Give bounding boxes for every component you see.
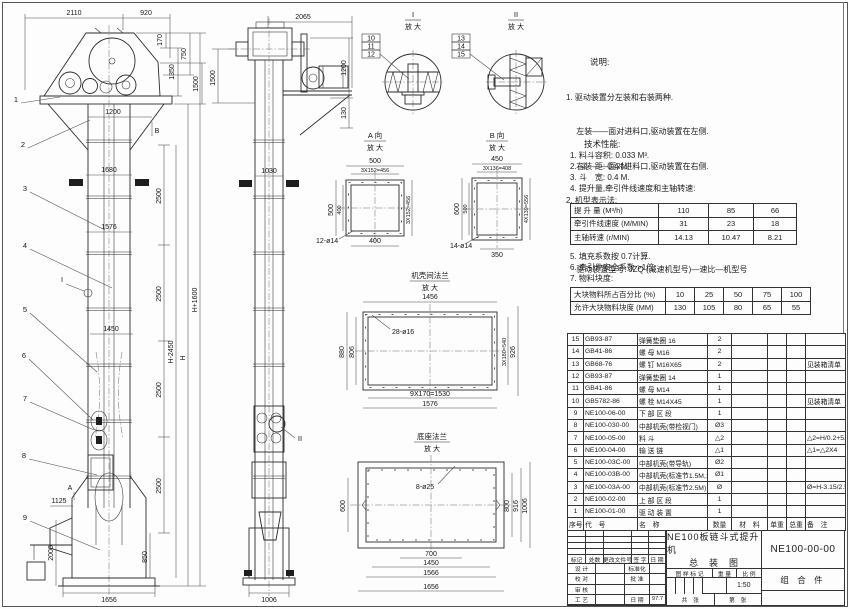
table-cell: 11 bbox=[568, 383, 584, 395]
table-row: 4NE100-03B-00中部机壳(标准节1.5M,1M)Ø1 bbox=[568, 469, 846, 481]
table-cell bbox=[806, 456, 846, 468]
table-cell: NE100-03C-00 bbox=[584, 456, 638, 468]
table-cell bbox=[787, 395, 806, 407]
side-view-geometry bbox=[228, 18, 352, 596]
table-row: 8NE100-030-00中部机壳(带检视门)Ø3 bbox=[568, 420, 846, 432]
table-cell: 12 bbox=[568, 370, 584, 382]
table-cell bbox=[732, 395, 768, 407]
table-cell bbox=[787, 506, 806, 518]
part-label: 2 bbox=[21, 140, 25, 149]
table-row: 允许大块物料块度 (MM)130105806555 bbox=[571, 301, 811, 315]
table-cell: 55 bbox=[782, 301, 811, 315]
table-cell: 130 bbox=[666, 301, 695, 315]
dim-label: 1656 bbox=[423, 584, 439, 591]
dim-label: 1500 bbox=[193, 76, 200, 92]
parts-list-header-row: 序号代 号名 称数量材 料单重总重备 注 bbox=[568, 518, 846, 530]
approve-label: 批 准 bbox=[625, 574, 650, 584]
table-cell: 序号 bbox=[568, 518, 584, 530]
table-cell: Ø2 bbox=[708, 456, 732, 468]
table-cell: NE100-03A-00 bbox=[584, 481, 638, 493]
table-row: 12GB93-87弹簧垫圈 141 bbox=[568, 370, 846, 382]
table-cell: 10 bbox=[568, 395, 584, 407]
table-cell: GB93-87 bbox=[584, 370, 638, 382]
table-cell: 2 bbox=[708, 358, 732, 370]
table-cell: 18 bbox=[754, 217, 797, 231]
dim-label: H bbox=[180, 355, 187, 360]
table-cell: Ø bbox=[708, 481, 732, 493]
process-label: 工 艺 bbox=[568, 595, 596, 605]
title-block: 标记 处数 更改文件号 签 字 日 期 设 计标准化 校 对批 准 审 核 工 … bbox=[567, 530, 845, 606]
table-row: 14GB41-86螺 母 M162 bbox=[568, 346, 846, 358]
table-cell: 螺 母 M14 bbox=[638, 383, 708, 395]
table-cell bbox=[732, 456, 768, 468]
table-cell bbox=[768, 395, 787, 407]
table-cell bbox=[732, 346, 768, 358]
table-cell: 代 号 bbox=[584, 518, 638, 530]
table-cell: 85 bbox=[709, 204, 754, 218]
table-cell bbox=[732, 334, 768, 346]
table-cell: 提 升 量 (M³/h) bbox=[571, 204, 659, 218]
table-cell: 110 bbox=[659, 204, 709, 218]
table-cell: NE100-06-00 bbox=[584, 407, 638, 419]
dim-label: 926 bbox=[510, 346, 517, 358]
hole-callout: 8-ø25 bbox=[416, 484, 434, 491]
dim-label: 1350 bbox=[169, 64, 176, 80]
part-label: 7 bbox=[23, 394, 27, 403]
number-area: NE100-00-00 组 合 件 bbox=[761, 531, 844, 605]
part-label: 3 bbox=[23, 184, 27, 193]
table-cell bbox=[787, 346, 806, 358]
table-row: 2NE100-02-00上 部 区 段1 bbox=[568, 493, 846, 505]
table-cell: 10 bbox=[666, 288, 695, 302]
table-cell bbox=[732, 444, 768, 456]
table-cell bbox=[732, 469, 768, 481]
part-label: 1 bbox=[14, 95, 18, 104]
table-cell bbox=[787, 407, 806, 419]
table-cell bbox=[787, 370, 806, 382]
standardize-label: 标准化 bbox=[625, 564, 650, 574]
table-cell bbox=[732, 407, 768, 419]
part-label: 6 bbox=[22, 351, 26, 360]
dim-label: 2500 bbox=[156, 382, 163, 398]
casing-flange-view: 机壳间法兰 放 大 1456 28-ø16 880 806 3X180=540 … bbox=[339, 270, 518, 408]
dim-label: 2500 bbox=[156, 188, 163, 204]
hole-callout: 28-ø16 bbox=[392, 329, 414, 336]
section-mark-a: A bbox=[68, 485, 73, 492]
dim-label: 400 bbox=[369, 238, 381, 245]
table-cell: 8.21 bbox=[754, 231, 797, 245]
table-cell bbox=[732, 370, 768, 382]
proofread-label: 校 对 bbox=[568, 574, 596, 584]
dim-label: 600 bbox=[454, 203, 461, 215]
dim-label: 750 bbox=[181, 48, 188, 60]
dim-label: 3X180=540 bbox=[502, 338, 508, 366]
lump-size-table: 大块物料所占百分比 (%)10255075100允许大块物料块度 (MM)130… bbox=[570, 287, 811, 315]
detail-2: II 放 大 13 14 15 bbox=[452, 10, 548, 114]
table-cell bbox=[806, 334, 846, 346]
weight-label: 重 量 bbox=[713, 569, 737, 578]
part-label: 4 bbox=[23, 241, 27, 250]
table-cell: NE100-030-00 bbox=[584, 420, 638, 432]
table-cell: 1 bbox=[708, 506, 732, 518]
date-label: 日 期 bbox=[625, 595, 650, 605]
table-cell: NE100-03B-00 bbox=[584, 469, 638, 481]
table-cell bbox=[787, 444, 806, 456]
table-cell: 2 bbox=[708, 346, 732, 358]
table-cell bbox=[768, 444, 787, 456]
dim-label: 3X152=456 bbox=[361, 168, 389, 174]
dim-label: 500 bbox=[328, 204, 335, 216]
part-label: 15 bbox=[457, 52, 465, 59]
spec-line: 5. 填充系数按 0.7计算. bbox=[570, 251, 848, 262]
part-label: 10 bbox=[367, 36, 375, 43]
view-b-subtitle: 放 大 bbox=[489, 143, 505, 152]
table-cell bbox=[787, 358, 806, 370]
table-cell: △2 bbox=[708, 432, 732, 444]
table-cell: 主轴转速 (r/MIN) bbox=[571, 231, 659, 245]
table-cell: 材 料 bbox=[732, 518, 768, 530]
part-label: 13 bbox=[457, 36, 465, 43]
table-cell: 1 bbox=[708, 407, 732, 419]
part-label: 5 bbox=[23, 305, 27, 314]
table-row: 9NE100-06-00下 部 区 段1 bbox=[568, 407, 846, 419]
table-cell: 66 bbox=[754, 204, 797, 218]
table-cell: 15 bbox=[568, 334, 584, 346]
table-cell: 名 称 bbox=[638, 518, 708, 530]
table-row: 15GB93-87弹簧垫圈 162 bbox=[568, 334, 846, 346]
dim-label: 1656 bbox=[101, 597, 117, 604]
table-cell: △1=△2X4 bbox=[806, 444, 846, 456]
table-row: 6NE100-04-00输 送 链△1△1=△2X4 bbox=[568, 444, 846, 456]
part-label: 12 bbox=[367, 52, 375, 59]
table-cell bbox=[806, 346, 846, 358]
dim-label: 1200 bbox=[105, 109, 121, 116]
note-line: 左装——面对进料口,驱动装置在左侧. bbox=[566, 126, 848, 138]
dim-label: 700 bbox=[425, 551, 437, 558]
blank-cell bbox=[762, 591, 844, 605]
dim-label: 850 bbox=[142, 551, 149, 563]
table-cell: 23 bbox=[709, 217, 754, 231]
table-cell: 25 bbox=[695, 288, 724, 302]
table-cell bbox=[787, 456, 806, 468]
dim-label: 450 bbox=[491, 156, 503, 163]
dim-label: 1200 bbox=[341, 60, 348, 76]
table-cell bbox=[806, 383, 846, 395]
detail-mark-2: II bbox=[298, 434, 302, 443]
view-a: A 向 放 大 500 3X152=456 500 400 3X152=456 … bbox=[316, 130, 412, 246]
detail-mark-1: I bbox=[61, 275, 63, 284]
dim-label: 1006 bbox=[261, 597, 277, 604]
table-cell: 料 斗 bbox=[638, 432, 708, 444]
table-cell: GB93-87 bbox=[584, 334, 638, 346]
part-label: 14 bbox=[457, 44, 465, 51]
table-cell: 备 注 bbox=[806, 518, 846, 530]
total-sheets-label: 共 张 bbox=[667, 594, 715, 605]
title-area: NE100板链斗式提升机 总 装 图 图 样 标 记 重 量 比 例 1:50 … bbox=[666, 531, 761, 605]
elevator-drawing: 2110 920 170 1350 750 1500 1200 B 1680 1… bbox=[0, 0, 565, 609]
table-cell: 下 部 区 段 bbox=[638, 407, 708, 419]
table-cell: Ø=H-3.15/2.5 bbox=[806, 481, 846, 493]
dim-label: 1030 bbox=[261, 168, 277, 175]
table-cell: 螺 栓 M14X45 bbox=[638, 395, 708, 407]
dim-label: 2110 bbox=[66, 10, 81, 17]
table-cell: 弹簧垫圈 16 bbox=[638, 334, 708, 346]
scale-value: 1:50 bbox=[727, 578, 762, 594]
table-cell bbox=[768, 370, 787, 382]
dim-label: 1566 bbox=[423, 570, 439, 577]
dim-label: 400 bbox=[337, 205, 343, 214]
hole-callout: 14-ø14 bbox=[450, 243, 472, 250]
date-value: 97.7 bbox=[650, 595, 666, 605]
table-row: 5NE100-03C-00中部机壳(带导轨)Ø2 bbox=[568, 456, 846, 468]
table-cell: 1 bbox=[708, 493, 732, 505]
table-cell bbox=[787, 481, 806, 493]
table-cell bbox=[806, 420, 846, 432]
spec-line: 6. 牵引件安全系数 >1倍. bbox=[570, 262, 848, 273]
scale-label: 比 例 bbox=[737, 569, 761, 578]
table-cell bbox=[768, 456, 787, 468]
table-cell: 1 bbox=[708, 383, 732, 395]
spec-line: 7. 物料块度: bbox=[570, 273, 848, 284]
stamp-label: 图 样 标 记 bbox=[667, 569, 713, 578]
table-cell: 总重 bbox=[787, 518, 806, 530]
rev-date-label: 日 期 bbox=[649, 555, 666, 564]
dim-label: 1125 bbox=[51, 498, 66, 505]
table-cell: △1 bbox=[708, 444, 732, 456]
dim-label: 1006 bbox=[522, 498, 529, 514]
part-label: 11 bbox=[367, 44, 374, 51]
table-row: 提 升 量 (M³/h)1108566 bbox=[571, 204, 797, 218]
table-cell: 驱 动 装 置 bbox=[638, 506, 708, 518]
table-cell bbox=[806, 407, 846, 419]
flange-title: 机壳间法兰 bbox=[411, 270, 449, 280]
table-cell: 65 bbox=[753, 301, 782, 315]
parts-list-body: 15GB93-87弹簧垫圈 16214GB41-86螺 母 M16213GB68… bbox=[568, 334, 846, 518]
table-cell: △2=H/0.2+5.75 bbox=[806, 432, 846, 444]
detail-1: I 放 大 10 11 12 bbox=[362, 10, 444, 114]
table-cell: 数量 bbox=[708, 518, 732, 530]
view-b: B 向 放 大 450 3X136=408 600 500 4X139=556 … bbox=[450, 130, 530, 259]
rev-doc-label: 更改文件号 bbox=[604, 555, 632, 564]
table-cell: 50 bbox=[724, 288, 753, 302]
table-cell bbox=[732, 420, 768, 432]
table-cell: 单重 bbox=[768, 518, 787, 530]
table-cell bbox=[768, 383, 787, 395]
table-cell: 大块物料所占百分比 (%) bbox=[571, 288, 666, 302]
base-flange-view: 底座法兰 放 大 8-ø25 600 800 916 1006 700 1450… bbox=[340, 431, 530, 591]
sheet-number-label: 第 张 bbox=[715, 594, 762, 605]
table-cell: 13 bbox=[568, 358, 584, 370]
dim-label: 350 bbox=[491, 252, 503, 259]
dim-label: 920 bbox=[140, 10, 152, 17]
table-cell bbox=[732, 506, 768, 518]
table-cell: 牵引件线速度 (M/MIN) bbox=[571, 217, 659, 231]
base-title: 底座法兰 bbox=[417, 431, 447, 441]
revision-area: 标记 处数 更改文件号 签 字 日 期 设 计标准化 校 对批 准 审 核 工 … bbox=[568, 531, 666, 605]
table-row: 牵引件线速度 (M/MIN)312318 bbox=[571, 217, 797, 231]
rev-sign-label: 签 字 bbox=[632, 555, 649, 564]
table-cell bbox=[732, 493, 768, 505]
table-cell bbox=[787, 383, 806, 395]
table-cell: 见装箱清单 bbox=[806, 395, 846, 407]
proofread-sign bbox=[596, 574, 625, 584]
dim-label: 800 bbox=[504, 500, 511, 512]
dim-label: 3X136=408 bbox=[483, 166, 511, 172]
table-cell: 14 bbox=[568, 346, 584, 358]
table-cell: 1 bbox=[708, 395, 732, 407]
table-cell: 中部机壳(标准节1.5M,1M) bbox=[638, 469, 708, 481]
front-view-dimensions: 2110 920 170 1350 750 1500 1200 B 1680 1… bbox=[25, 10, 206, 604]
table-cell bbox=[806, 370, 846, 382]
table-cell bbox=[732, 383, 768, 395]
table-cell bbox=[732, 481, 768, 493]
design-label: 设 计 bbox=[568, 564, 596, 574]
dim-label: 9X170=1530 bbox=[410, 391, 450, 398]
parts-list: 15GB93-87弹簧垫圈 16214GB41-86螺 母 M16213GB68… bbox=[567, 333, 846, 531]
dim-label: 2500 bbox=[156, 478, 163, 494]
table-row: 大块物料所占百分比 (%)10255075100 bbox=[571, 288, 811, 302]
dim-label: 880 bbox=[339, 346, 346, 358]
dim-label: 916 bbox=[513, 500, 520, 512]
front-view-part-labels: 1 2 3 4 5 6 7 8 9 I bbox=[14, 95, 112, 550]
table-row: 1NE100-01-00驱 动 装 置1 bbox=[568, 506, 846, 518]
table-cell: 上 部 区 段 bbox=[638, 493, 708, 505]
dim-label: 500 bbox=[369, 158, 381, 165]
table-cell: NE100-05-00 bbox=[584, 432, 638, 444]
stamp-boxes bbox=[667, 578, 703, 594]
dim-label: 1456 bbox=[422, 294, 438, 301]
table-cell: 中部机壳(带检视门) bbox=[638, 420, 708, 432]
table-cell bbox=[787, 469, 806, 481]
dim-label: 170 bbox=[157, 34, 164, 46]
table-cell: 1 bbox=[708, 370, 732, 382]
approve-sign bbox=[650, 574, 666, 584]
table-cell: 弹簧垫圈 14 bbox=[638, 370, 708, 382]
table-cell bbox=[787, 420, 806, 432]
dim-label: 500 bbox=[463, 204, 469, 213]
standardize-sign bbox=[650, 564, 666, 574]
table-cell: 4 bbox=[568, 469, 584, 481]
table-cell: GB5782-86 bbox=[584, 395, 638, 407]
dim-label: 600 bbox=[340, 500, 347, 512]
table-cell: 105 bbox=[695, 301, 724, 315]
dim-label: 806 bbox=[349, 346, 356, 358]
table-row: 7NE100-05-00料 斗△2△2=H/0.2+5.75 bbox=[568, 432, 846, 444]
rev-mark-label: 标记 bbox=[568, 555, 586, 564]
dim-label: 1450 bbox=[423, 560, 439, 567]
front-view-geometry bbox=[27, 25, 172, 596]
table-cell bbox=[768, 506, 787, 518]
detail-1-subtitle: 放 大 bbox=[405, 22, 421, 31]
view-a-title: A 向 bbox=[368, 130, 382, 140]
view-b-title: B 向 bbox=[490, 130, 505, 140]
table-cell: NE100-04-00 bbox=[584, 444, 638, 456]
spec-line: 1. 料斗容积: 0.033 M³. bbox=[570, 150, 848, 161]
revision-header: 标记 处数 更改文件号 签 字 日 期 bbox=[568, 555, 666, 564]
spec-line: 3. 斗 宽: 0.4 M. bbox=[570, 172, 848, 183]
table-row: 10GB5782-86螺 栓 M14X451见装箱清单 bbox=[568, 395, 846, 407]
dim-label: 2000 bbox=[48, 545, 55, 561]
table-cell: 100 bbox=[782, 288, 811, 302]
capacity-table: 提 升 量 (M³/h)1108566牵引件线速度 (M/MIN)312318主… bbox=[570, 203, 797, 245]
side-view-dimensions: 2065 1500 1030 1006 1200 130 II bbox=[210, 14, 353, 604]
dim-label: 1576 bbox=[422, 401, 438, 408]
table-cell: 7 bbox=[568, 432, 584, 444]
hole-callout: 12-ø14 bbox=[316, 238, 338, 245]
table-cell: 螺 母 M16 bbox=[638, 346, 708, 358]
table-cell bbox=[768, 334, 787, 346]
table-cell: 2 bbox=[568, 493, 584, 505]
dim-label: 1500 bbox=[210, 70, 217, 86]
table-cell: 见装箱清单 bbox=[806, 358, 846, 370]
table-cell bbox=[768, 346, 787, 358]
table-cell: 14.13 bbox=[659, 231, 709, 245]
weight-value bbox=[703, 578, 727, 594]
detail-2-title: II bbox=[514, 10, 518, 19]
review-extra bbox=[625, 585, 650, 595]
dim-label: 1450 bbox=[103, 326, 119, 333]
table-row: 13GB68-76螺 钉 M16X652见装箱清单 bbox=[568, 358, 846, 370]
dim-label: 2500 bbox=[156, 286, 163, 302]
table-cell: 螺 钉 M16X65 bbox=[638, 358, 708, 370]
dim-label: 3X152=456 bbox=[406, 196, 412, 224]
dim-label: 1680 bbox=[101, 167, 117, 174]
table-cell: NE100-01-00 bbox=[584, 506, 638, 518]
design-sign bbox=[596, 564, 625, 574]
table-row: 11GB41-86螺 母 M141 bbox=[568, 383, 846, 395]
table-cell bbox=[768, 407, 787, 419]
base-subtitle: 放 大 bbox=[424, 444, 440, 453]
part-type: 组 合 件 bbox=[762, 569, 844, 591]
product-name: NE100板链斗式提升机 bbox=[667, 530, 761, 556]
note-line: 1. 驱动装置分左装和右装两种. bbox=[566, 92, 848, 104]
table-cell: NE100-02-00 bbox=[584, 493, 638, 505]
notes-title: 说明: bbox=[590, 57, 848, 69]
review-extra2 bbox=[650, 585, 666, 595]
flange-subtitle: 放 大 bbox=[422, 283, 438, 292]
table-cell bbox=[806, 506, 846, 518]
table-cell: GB68-76 bbox=[584, 358, 638, 370]
table-cell: 75 bbox=[753, 288, 782, 302]
process-sign bbox=[596, 595, 625, 605]
table-cell bbox=[787, 432, 806, 444]
table-cell: 2 bbox=[708, 334, 732, 346]
table-cell: 允许大块物料块度 (MM) bbox=[571, 301, 666, 315]
table-cell: 3 bbox=[568, 481, 584, 493]
section-mark-b: B bbox=[155, 128, 160, 135]
table-cell: 6 bbox=[568, 444, 584, 456]
rev-count-label: 处数 bbox=[586, 555, 604, 564]
table-cell: 31 bbox=[659, 217, 709, 231]
view-a-subtitle: 放 大 bbox=[367, 143, 383, 152]
table-cell: 中部机壳(标准节2.5M) bbox=[638, 481, 708, 493]
table-cell bbox=[768, 432, 787, 444]
dim-label: H+1600 bbox=[192, 288, 199, 313]
table-cell bbox=[732, 432, 768, 444]
part-label: 9 bbox=[23, 513, 27, 522]
table-cell bbox=[732, 358, 768, 370]
drawing-sheet: 2110 920 170 1350 750 1500 1200 B 1680 1… bbox=[0, 0, 850, 609]
dim-label: 1576 bbox=[101, 224, 117, 231]
table-cell bbox=[787, 493, 806, 505]
dim-label: 130 bbox=[341, 107, 348, 119]
table-cell: Ø1 bbox=[708, 469, 732, 481]
table-cell bbox=[806, 493, 846, 505]
table-cell: 8 bbox=[568, 420, 584, 432]
table-cell: GB41-86 bbox=[584, 346, 638, 358]
review-label: 审 核 bbox=[568, 585, 596, 595]
table-cell bbox=[806, 469, 846, 481]
